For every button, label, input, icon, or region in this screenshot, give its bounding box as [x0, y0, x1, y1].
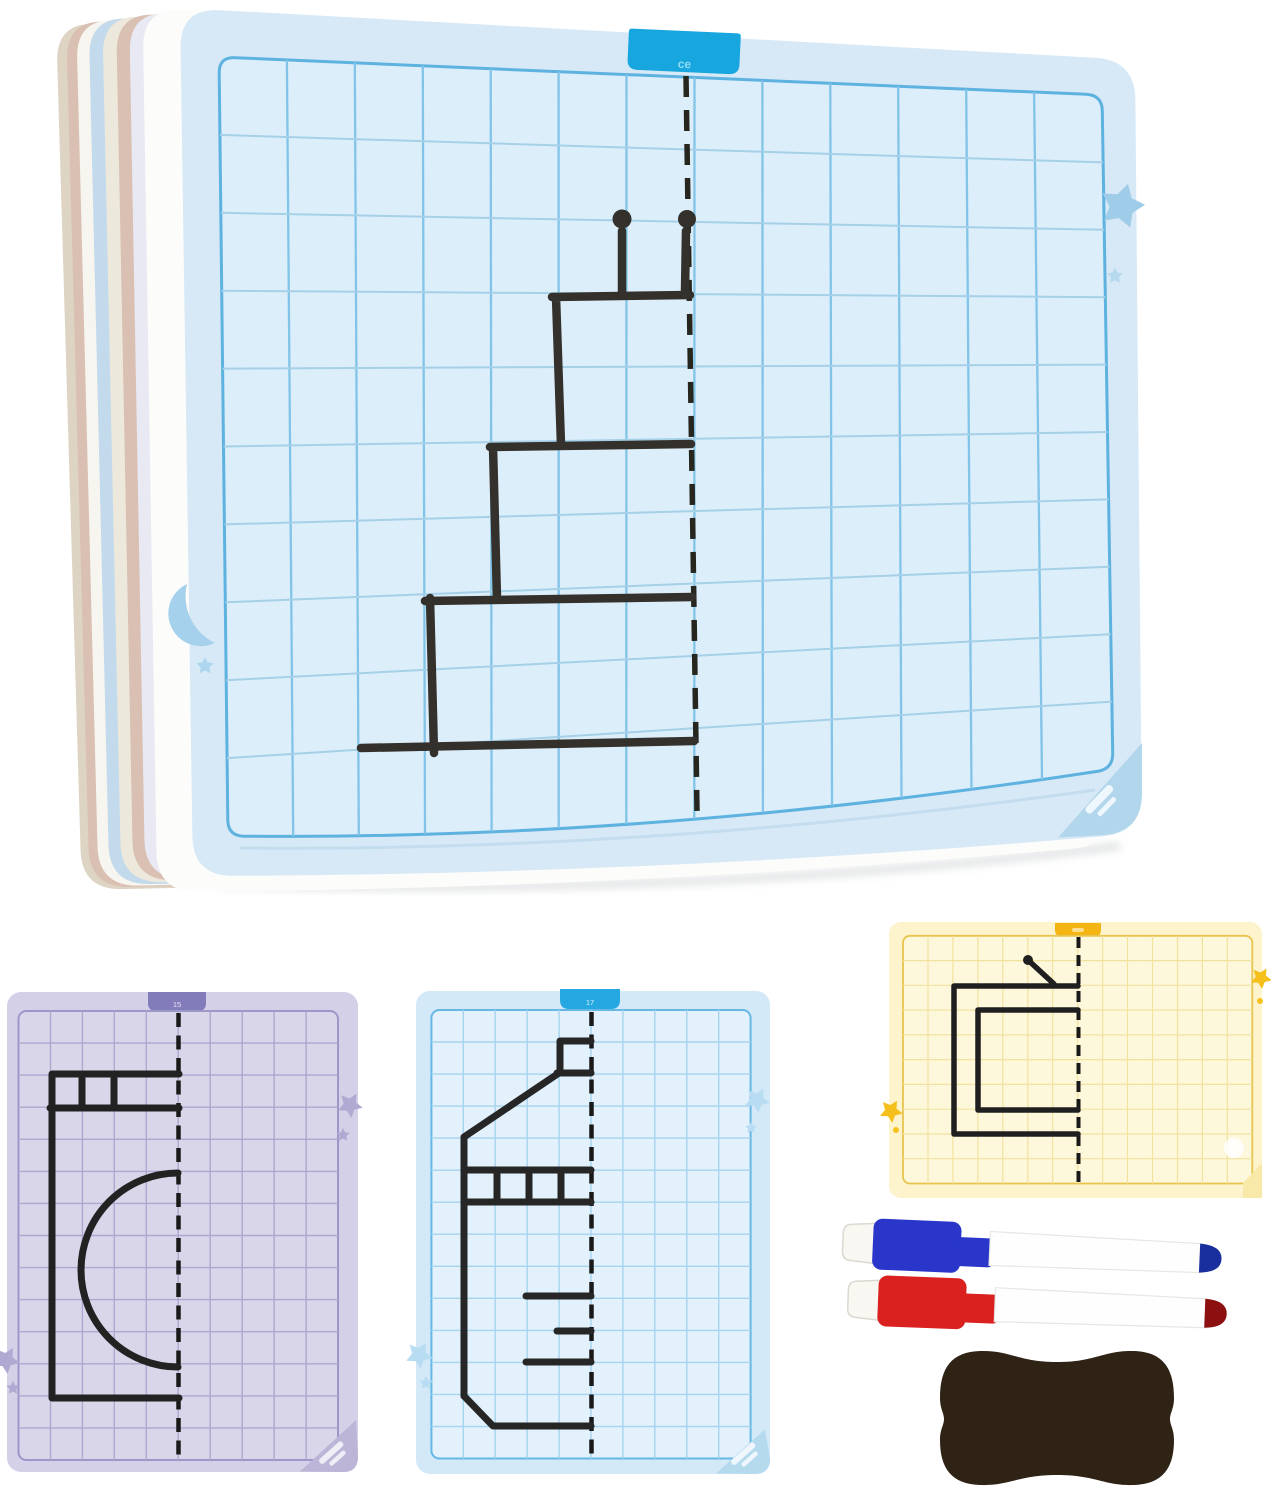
svg-text:15: 15 [173, 1000, 181, 1009]
svg-text:17: 17 [586, 998, 594, 1007]
svg-text:ce: ce [677, 57, 691, 72]
